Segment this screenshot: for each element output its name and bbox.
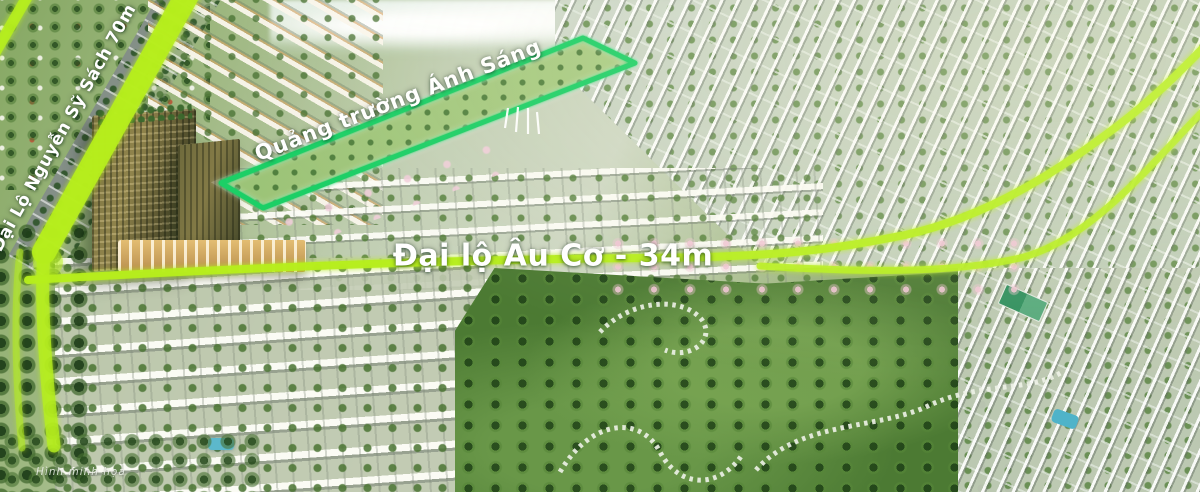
masterplan-aerial-render: Đại Lộ Nguyễn Sỹ Sách 70m Quảng trường Á… — [0, 0, 1200, 492]
road-junction-glow — [33, 247, 63, 277]
avenue-side-lane-line — [16, 252, 22, 448]
park-path — [600, 304, 706, 353]
avenue-corner-line — [0, 0, 30, 58]
road-label-au-co: Đại lộ Âu Cơ - 34m — [393, 239, 713, 274]
park-path — [560, 428, 742, 481]
illustration-watermark: Hình minh họa — [36, 466, 126, 478]
light-square-outline-group — [221, 38, 635, 208]
park-walking-paths — [560, 304, 1062, 480]
fountain-jet — [537, 112, 539, 134]
park-path — [756, 372, 1062, 470]
light-square-outline-glow — [221, 38, 635, 208]
